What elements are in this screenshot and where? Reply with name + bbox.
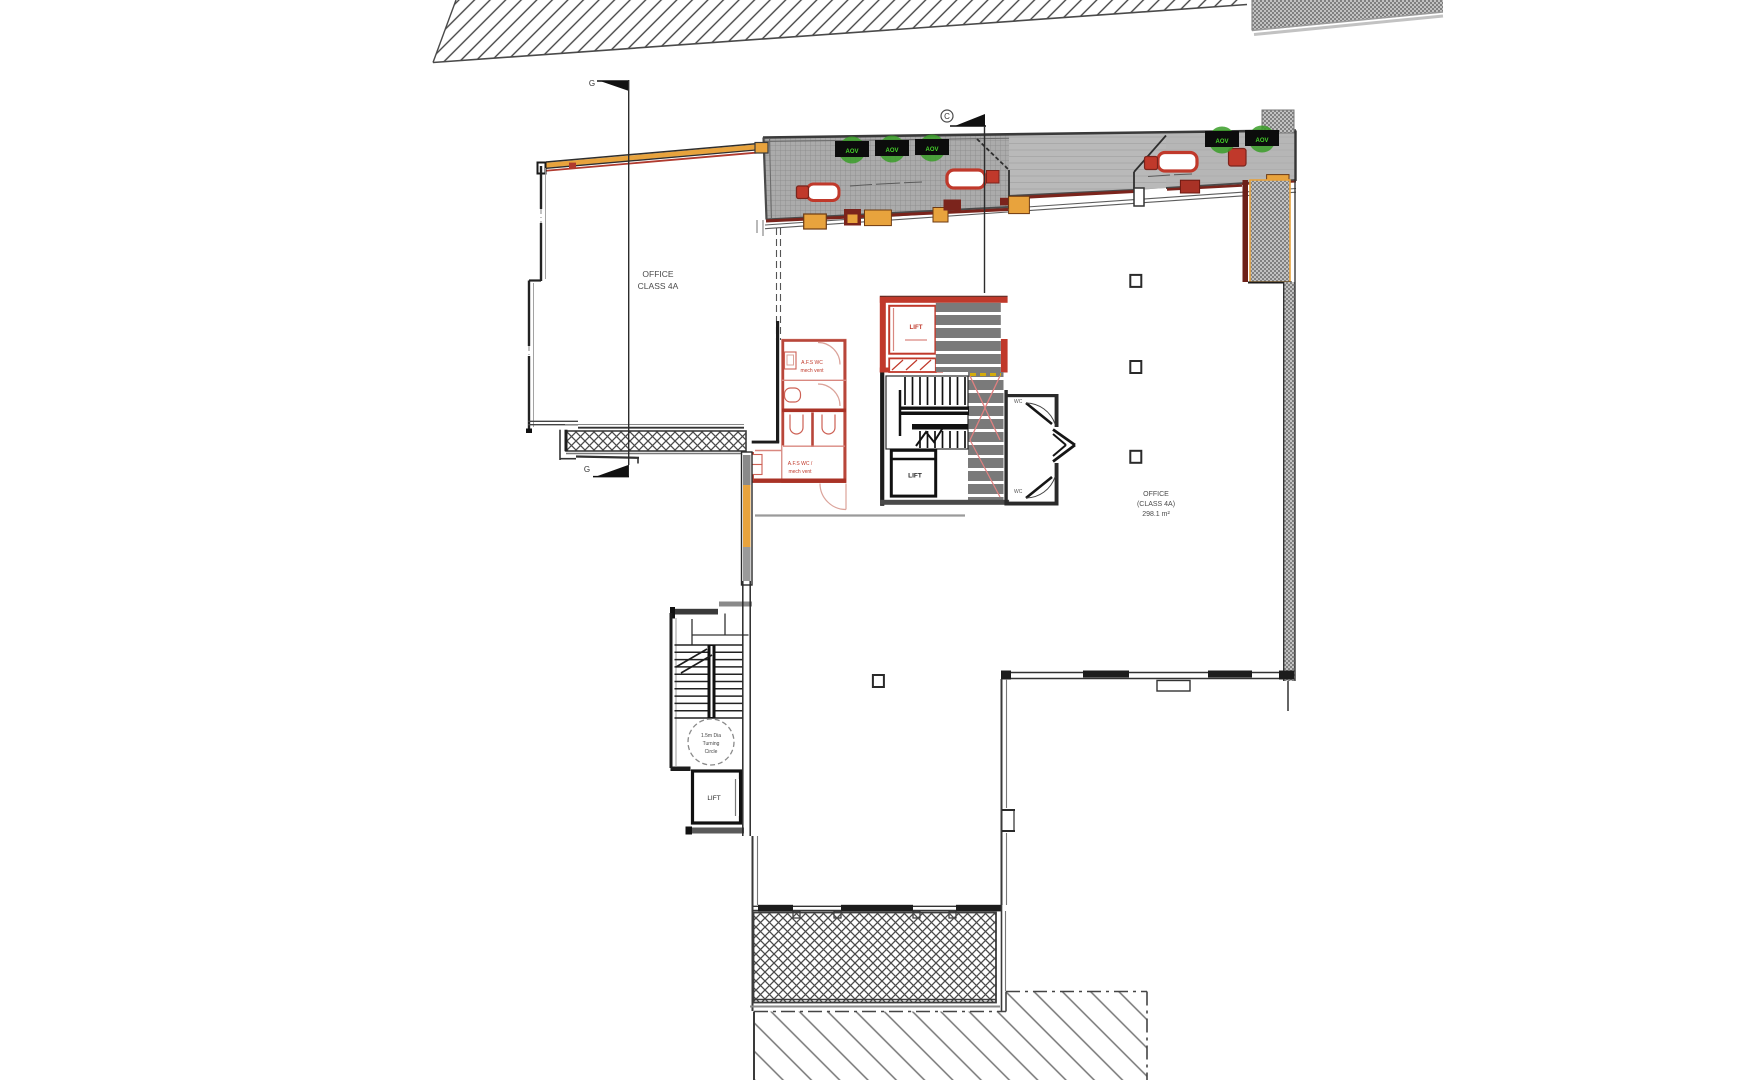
svg-text:mech vent: mech vent <box>788 469 812 475</box>
svg-text:(CLASS 4A): (CLASS 4A) <box>1137 501 1175 508</box>
svg-text:WC: WC <box>1014 489 1023 495</box>
svg-text:AOV: AOV <box>885 148 898 154</box>
svg-text:WC: WC <box>1014 399 1023 405</box>
svg-text:A.F.S WC: A.F.S WC <box>801 360 823 366</box>
svg-text:C: C <box>944 112 950 121</box>
svg-text:Turning: Turning <box>703 741 720 747</box>
svg-text:AOV: AOV <box>1215 139 1228 145</box>
svg-text:mech vent: mech vent <box>800 368 824 374</box>
svg-text:298.1 m²: 298.1 m² <box>1142 511 1170 518</box>
svg-text:G: G <box>584 465 590 474</box>
svg-text:LIFT: LIFT <box>909 324 922 331</box>
svg-text:AOV: AOV <box>845 149 858 155</box>
svg-text:AOV: AOV <box>925 147 938 153</box>
svg-text:Circle: Circle <box>705 749 718 755</box>
svg-text:AOV: AOV <box>1255 138 1268 144</box>
svg-text:LIFT: LIFT <box>908 473 922 480</box>
svg-text:LIFT: LIFT <box>707 795 720 802</box>
svg-text:1.5m Dia: 1.5m Dia <box>701 733 721 739</box>
svg-text:CLASS 4A: CLASS 4A <box>638 281 679 291</box>
svg-text:OFFICE: OFFICE <box>1143 491 1169 498</box>
svg-text:A.F.S WC /: A.F.S WC / <box>788 461 813 467</box>
svg-text:G: G <box>589 79 595 88</box>
svg-text:OFFICE: OFFICE <box>642 269 673 279</box>
